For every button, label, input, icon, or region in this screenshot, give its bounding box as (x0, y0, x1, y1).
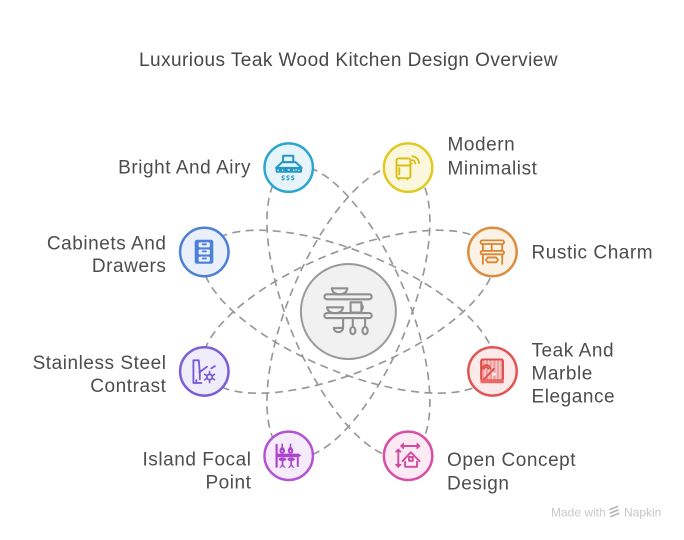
svg-text:Rustic Charm: Rustic Charm (532, 242, 654, 263)
svg-text:Marble: Marble (532, 363, 593, 384)
svg-text:Open Concept: Open Concept (447, 450, 576, 471)
svg-text:Minimalist: Minimalist (448, 159, 538, 180)
svg-text:Island Focal: Island Focal (142, 450, 251, 471)
svg-text:Bright And Airy: Bright And Airy (118, 158, 251, 179)
svg-text:Cabinets And: Cabinets And (47, 234, 167, 255)
svg-text:Made with: Made with (551, 506, 606, 520)
svg-text:Design: Design (447, 473, 509, 494)
svg-text:Contrast: Contrast (90, 376, 166, 397)
svg-text:Point: Point (205, 473, 251, 494)
svg-text:Napkin: Napkin (624, 506, 661, 520)
svg-text:Drawers: Drawers (92, 256, 167, 277)
svg-text:Stainless Steel: Stainless Steel (33, 353, 167, 374)
svg-text:Elegance: Elegance (532, 386, 616, 407)
svg-text:Teak And: Teak And (532, 340, 615, 361)
svg-text:Modern: Modern (448, 135, 516, 156)
svg-text:Luxurious Teak Wood Kitchen De: Luxurious Teak Wood Kitchen Design Overv… (139, 50, 558, 71)
